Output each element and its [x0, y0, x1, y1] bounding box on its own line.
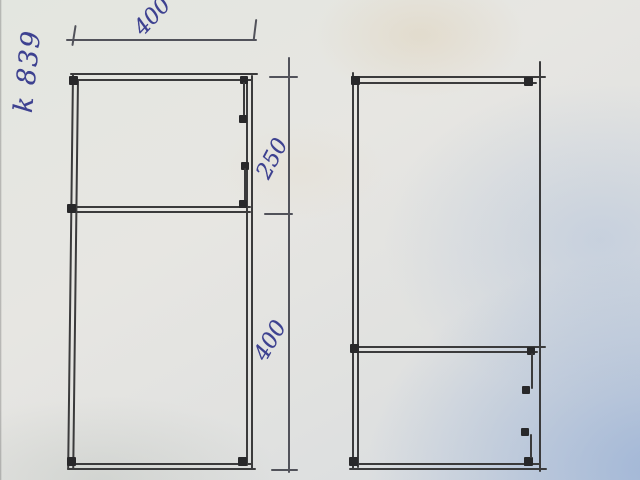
left-cabinet-hinge2-bottom: [239, 200, 247, 208]
right-cabinet-divider-outer: [353, 346, 546, 348]
left-cabinet-bottom-edge-outer: [67, 468, 256, 470]
right-cabinet-hinge2-top: [521, 428, 529, 436]
left-cabinet-divider-outer: [72, 206, 251, 208]
left-cabinet-right-edge-outer: [251, 75, 253, 470]
height-tick-bottom: [271, 469, 298, 471]
left-cabinet-hinge2-pin: [244, 168, 246, 204]
left-cabinet-right-edge-inner: [246, 82, 248, 466]
height-tick-middle: [264, 213, 293, 215]
left-cabinet-left-edge-inner: [72, 79, 79, 470]
right-cabinet-corner-bottom-left: [349, 457, 358, 466]
right-cabinet-bottom-edge-outer: [349, 468, 547, 470]
right-cabinet-bottom-edge-inner: [353, 463, 541, 465]
height-dimension-line: [288, 57, 290, 473]
top-width-tick-left: [71, 25, 76, 46]
right-cabinet-divider-inner: [353, 351, 538, 353]
left-cabinet-hinge1-pin: [243, 82, 245, 118]
right-cabinet-top-edge-outer: [351, 76, 546, 78]
left-cabinet-bottom-edge-inner: [71, 463, 252, 465]
height-tick-top: [269, 76, 298, 78]
left-cabinet-corner-bottom-right: [238, 457, 247, 466]
upper-height-value: 250: [253, 135, 292, 182]
paper-edge-shadow: [0, 0, 2, 480]
left-cabinet-top-edge-outer: [70, 73, 258, 75]
photo-of-hand-drawn-sketch: k 839 400 250 400: [0, 0, 640, 480]
left-cabinet-top-edge-inner: [75, 79, 252, 81]
right-cabinet-hinge1-pin: [531, 353, 533, 389]
right-cabinet-left-edge-outer: [352, 72, 354, 470]
left-cabinet-corner-top-left: [69, 76, 78, 85]
left-cabinet-hinge1-bottom: [239, 115, 247, 123]
part-number-label: k 839: [10, 24, 45, 118]
left-cabinet-corner-bottom-left: [67, 457, 76, 466]
top-width-tick-right: [253, 19, 257, 40]
left-cabinet-divider-inner: [72, 211, 251, 213]
top-width-dimension-line: [66, 39, 257, 41]
right-cabinet-hinge2-bottom: [524, 458, 532, 466]
right-cabinet-corner-top-left: [351, 76, 360, 85]
top-width-value: 400: [131, 0, 176, 40]
lower-height-value: 400: [251, 317, 291, 364]
right-cabinet-left-edge-inner: [357, 82, 359, 468]
left-cabinet-corner-divider-left: [67, 204, 76, 213]
right-cabinet-right-edge: [539, 61, 541, 472]
right-cabinet-corner-divider-left: [350, 344, 359, 353]
right-cabinet-top-edge-inner: [356, 82, 537, 84]
right-cabinet-hinge1-bottom: [522, 386, 530, 394]
right-cabinet-corner-top-right: [524, 77, 533, 86]
